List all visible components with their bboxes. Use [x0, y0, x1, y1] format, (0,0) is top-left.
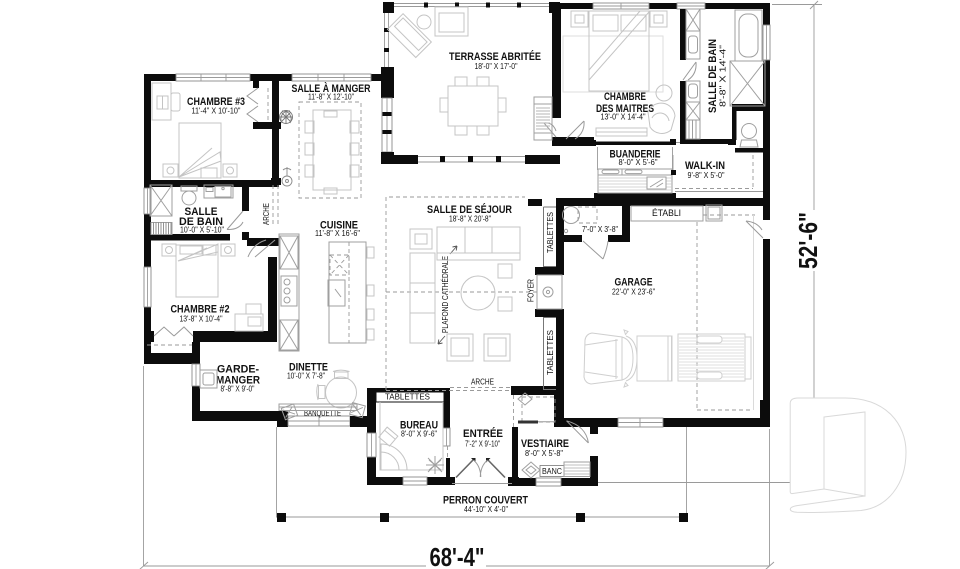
svg-text:ÉTABLI: ÉTABLI [652, 208, 681, 219]
svg-text:SALLE DE BAIN: SALLE DE BAIN [707, 39, 719, 113]
svg-text:PLAFOND CATHÉDRALE: PLAFOND CATHÉDRALE [441, 256, 450, 333]
svg-text:8'-8" X 9'-0": 8'-8" X 9'-0" [221, 385, 255, 394]
svg-text:10'-0" X 5'-10": 10'-0" X 5'-10" [180, 226, 224, 235]
svg-text:TABLETTES: TABLETTES [546, 212, 555, 253]
svg-text:9'-8" X 5'-0": 9'-8" X 5'-0" [688, 171, 725, 180]
svg-text:10'-0" X 7'-8": 10'-0" X 7'-8" [287, 372, 325, 381]
svg-text:ENTRÉE: ENTRÉE [463, 427, 503, 440]
svg-text:11'-8" X 12'-10": 11'-8" X 12'-10" [308, 93, 354, 102]
svg-text:ARCHE: ARCHE [471, 378, 494, 387]
svg-text:BANC: BANC [542, 467, 562, 476]
svg-text:68'-4": 68'-4" [430, 542, 485, 569]
svg-text:8'-8" X 14'-4": 8'-8" X 14'-4" [719, 45, 728, 107]
svg-text:18'-0" X 17'-0": 18'-0" X 17'-0" [475, 62, 518, 71]
svg-text:7'-0" X 3'-8": 7'-0" X 3'-8" [582, 225, 618, 234]
svg-text:11'-4" X 10'-10": 11'-4" X 10'-10" [192, 107, 241, 116]
svg-text:ARCHE: ARCHE [262, 203, 271, 225]
svg-text:TABLETTES: TABLETTES [546, 330, 555, 375]
svg-text:TABLETTES: TABLETTES [385, 393, 430, 402]
svg-text:44'-10" X 4'-0": 44'-10" X 4'-0" [464, 505, 508, 514]
svg-text:13'-0" X 14'-4": 13'-0" X 14'-4" [601, 113, 646, 122]
svg-text:CHAMBRE: CHAMBRE [604, 91, 646, 103]
svg-text:FOYER: FOYER [527, 279, 536, 302]
svg-text:8'-0" X 9'-6": 8'-0" X 9'-6" [401, 430, 437, 439]
svg-text:7'-2" X 9'-10": 7'-2" X 9'-10" [465, 440, 500, 449]
svg-text:13'-8" X 10'-4": 13'-8" X 10'-4" [180, 315, 223, 324]
svg-text:8'-0" X 5'-8": 8'-0" X 5'-8" [525, 449, 563, 458]
svg-text:52'-6": 52'-6" [793, 212, 823, 269]
svg-text:22'-0" X 23'-6": 22'-0" X 23'-6" [612, 288, 655, 297]
svg-text:8'-0" X 5'-6": 8'-0" X 5'-6" [619, 158, 658, 167]
svg-text:11'-8" X 16'-6": 11'-8" X 16'-6" [315, 229, 360, 238]
svg-text:18'-8" X 20'-8": 18'-8" X 20'-8" [449, 215, 491, 224]
